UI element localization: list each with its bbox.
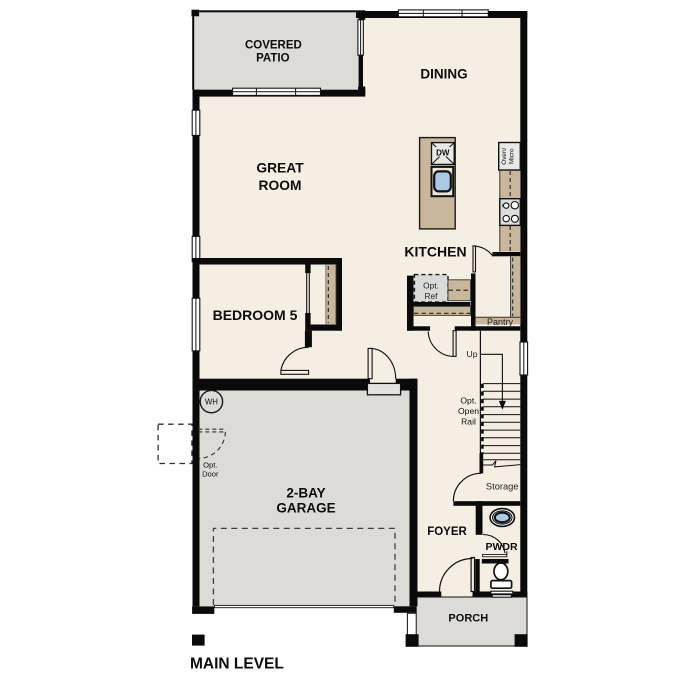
svg-text:PATIO: PATIO (256, 53, 289, 65)
svg-text:Pantry: Pantry (487, 317, 514, 327)
svg-text:Open: Open (458, 406, 479, 416)
svg-text:Ref: Ref (425, 291, 439, 301)
svg-text:ROOM: ROOM (259, 178, 302, 193)
svg-text:PWDR: PWDR (485, 541, 517, 553)
svg-text:GARAGE: GARAGE (276, 500, 335, 515)
svg-text:DINING: DINING (420, 67, 467, 82)
svg-text:BEDROOM 5: BEDROOM 5 (213, 307, 298, 323)
svg-text:Opt.: Opt. (203, 460, 217, 469)
svg-text:Opt.: Opt. (460, 396, 476, 406)
svg-text:FOYER: FOYER (427, 526, 467, 538)
svg-text:Up: Up (467, 349, 478, 359)
svg-text:Door: Door (202, 470, 219, 479)
svg-text:WH: WH (205, 398, 218, 407)
svg-text:Oven/: Oven/ (501, 147, 508, 164)
svg-text:Storage: Storage (486, 481, 519, 491)
svg-text:Opt.: Opt. (423, 281, 439, 291)
svg-text:Micro: Micro (509, 148, 516, 164)
svg-text:PORCH: PORCH (448, 613, 488, 625)
svg-text:MAIN LEVEL: MAIN LEVEL (190, 655, 284, 672)
svg-text:KITCHEN: KITCHEN (404, 243, 466, 259)
svg-text:COVERED: COVERED (245, 39, 302, 51)
svg-text:DW: DW (436, 148, 450, 157)
svg-text:Rail: Rail (461, 416, 476, 426)
svg-text:GREAT: GREAT (256, 161, 304, 176)
svg-text:2-BAY: 2-BAY (286, 485, 325, 500)
